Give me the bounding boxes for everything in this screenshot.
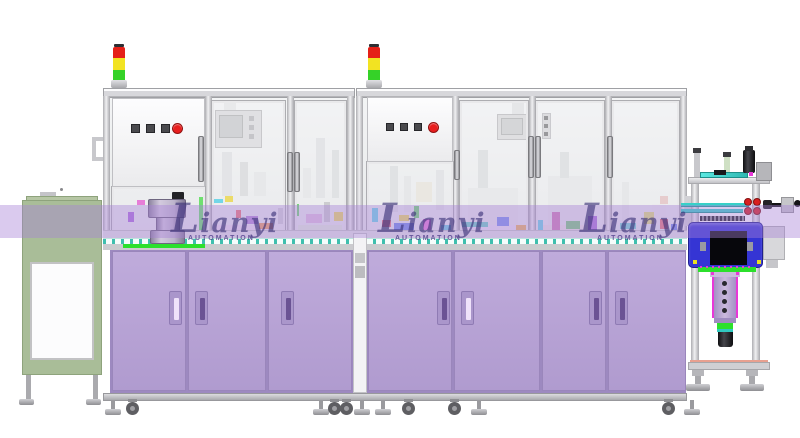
watermark-subtitle-text: AUTOMATION (188, 235, 301, 242)
watermark-brand-text: Lianyi (580, 206, 710, 237)
watermark-layer: Lianyi AUTOMATION Lianyi AUTOMATION Lian… (0, 0, 800, 438)
watermark-subtitle-text: AUTOMATION (597, 235, 710, 242)
watermark: Lianyi AUTOMATION (580, 206, 710, 242)
watermark: Lianyi AUTOMATION (378, 206, 508, 242)
machine-render: Lianyi AUTOMATION Lianyi AUTOMATION Lian… (0, 0, 800, 438)
watermark-brand-text: Lianyi (378, 206, 508, 237)
watermark-brand-text: Lianyi (171, 206, 301, 237)
watermark: Lianyi AUTOMATION (171, 206, 301, 242)
watermark-subtitle-text: AUTOMATION (395, 235, 508, 242)
